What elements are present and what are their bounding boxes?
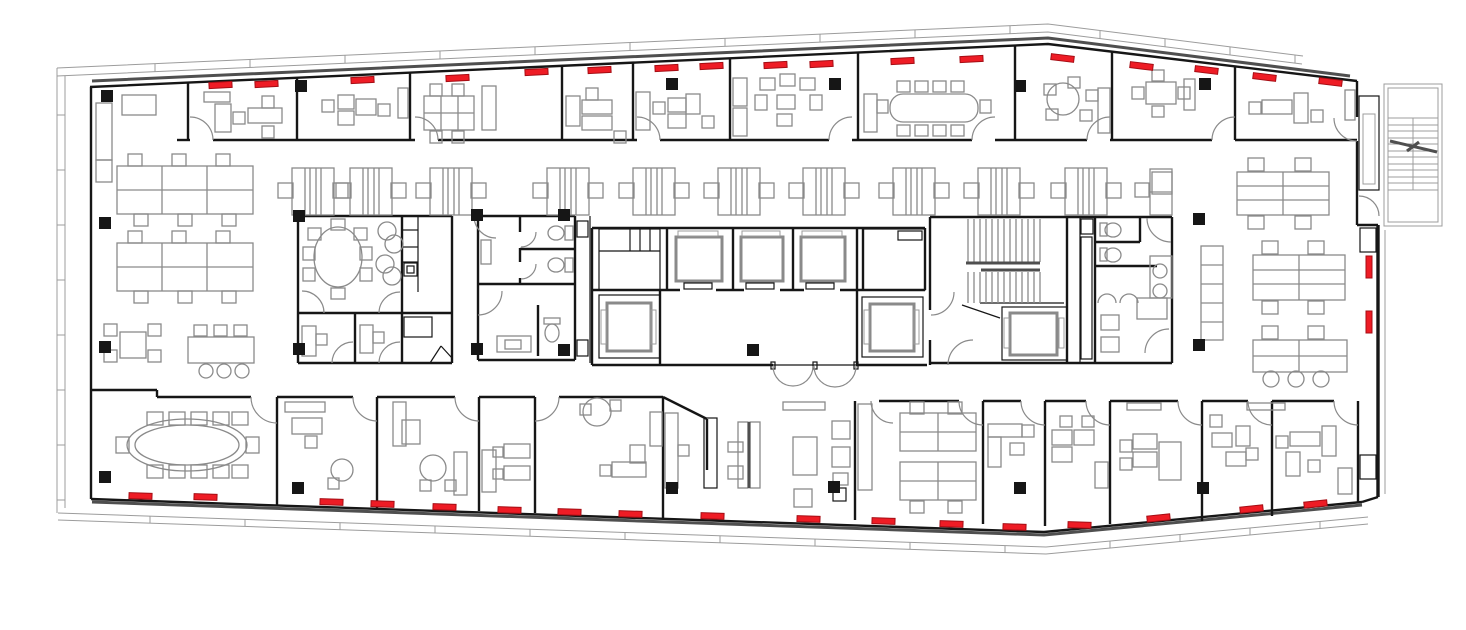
floor-plan-svg: [0, 0, 1466, 630]
floor-plan-viewport: [0, 0, 1466, 630]
furniture: [96, 70, 1355, 513]
exterior-walls: [90, 44, 1379, 532]
exterior-fire-stair: [1384, 84, 1442, 226]
core-stair: [966, 219, 1040, 303]
elevators: [599, 231, 1067, 360]
sanitary-fixtures: [481, 223, 1172, 352]
core-walls: [298, 216, 1172, 369]
